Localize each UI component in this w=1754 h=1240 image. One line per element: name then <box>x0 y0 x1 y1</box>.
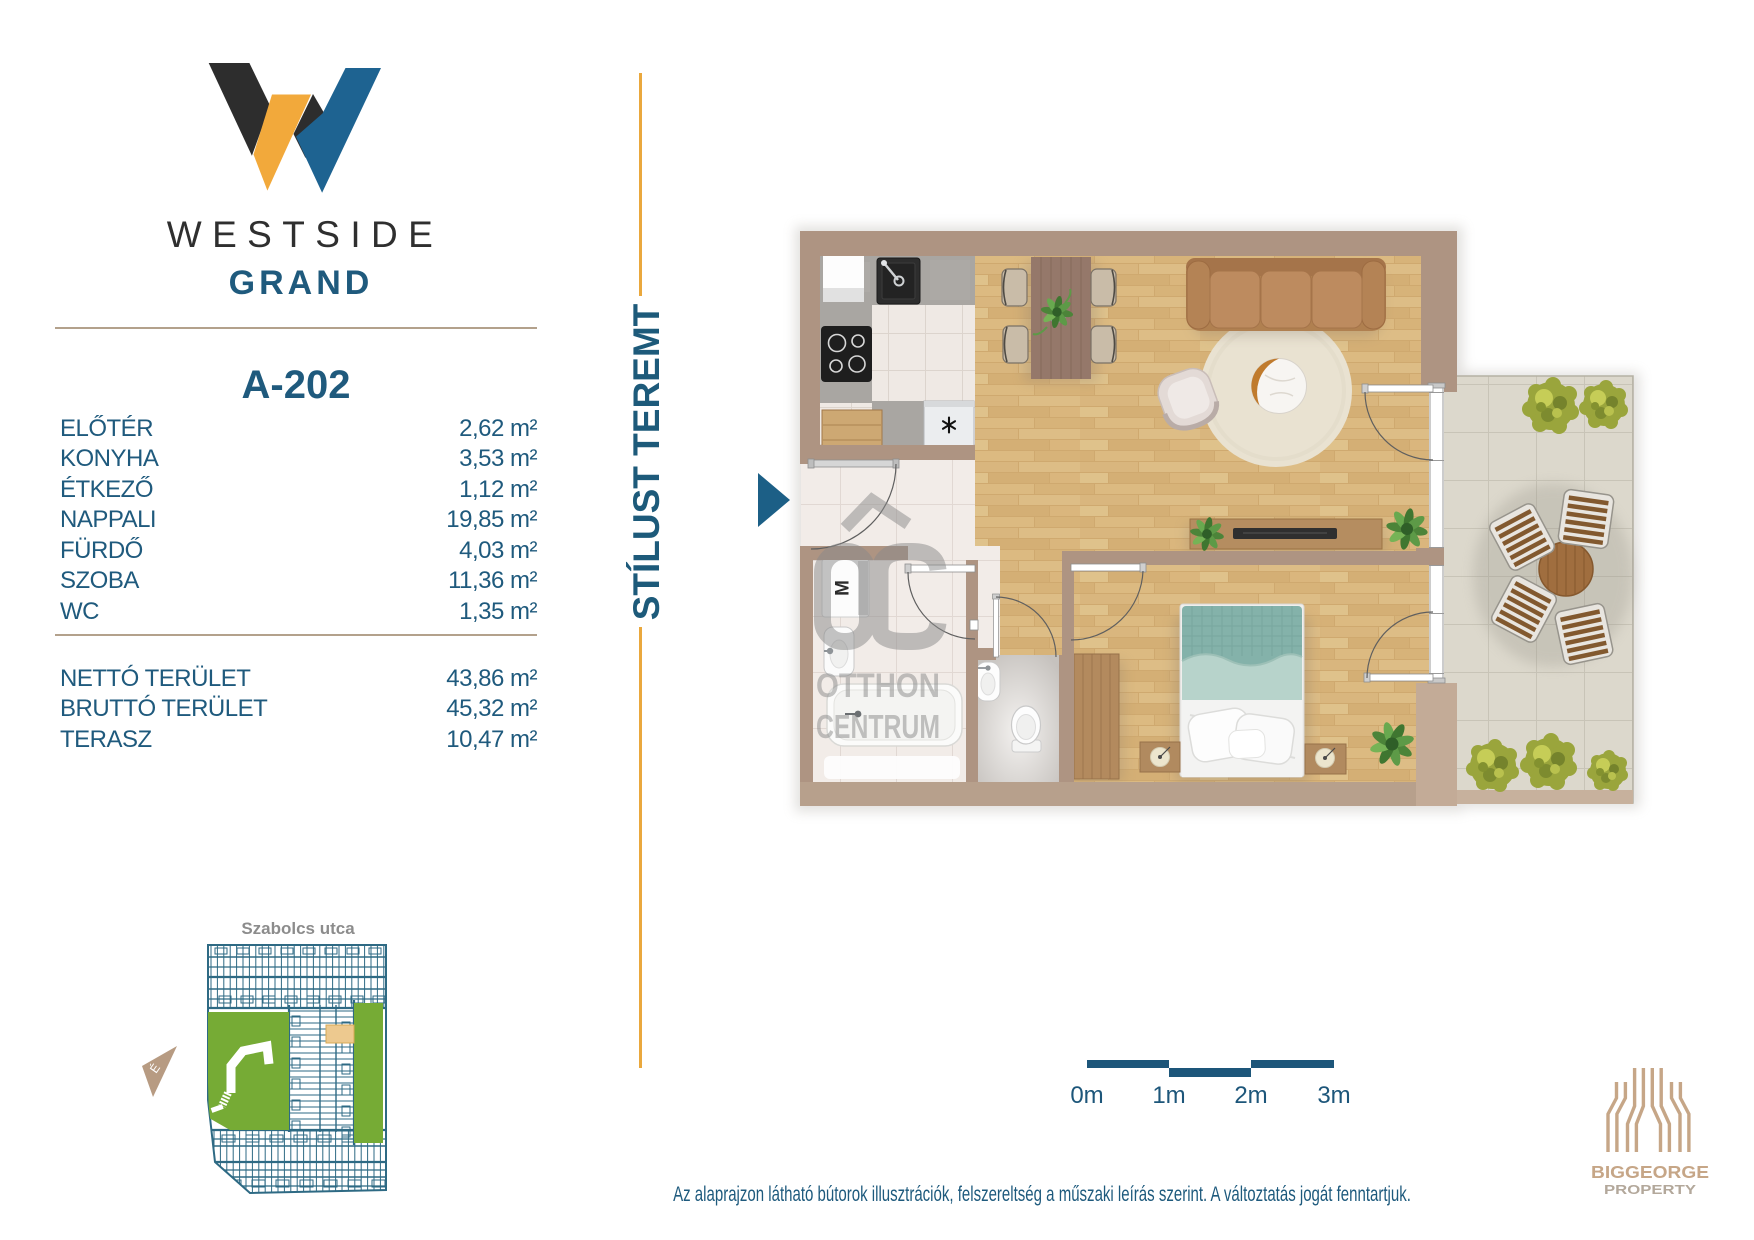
svg-text:0m: 0m <box>1070 1082 1103 1109</box>
svg-text:BIGGEORGE: BIGGEORGE <box>1591 1162 1709 1182</box>
svg-text:PROPERTY: PROPERTY <box>1604 1183 1697 1197</box>
svg-text:3m: 3m <box>1317 1082 1350 1109</box>
svg-text:1m: 1m <box>1152 1082 1185 1109</box>
svg-text:M: M <box>833 580 854 596</box>
svg-text:CENTRUM: CENTRUM <box>816 708 940 745</box>
svg-text:OTTHON: OTTHON <box>816 667 940 705</box>
svg-text:2m: 2m <box>1234 1082 1267 1109</box>
